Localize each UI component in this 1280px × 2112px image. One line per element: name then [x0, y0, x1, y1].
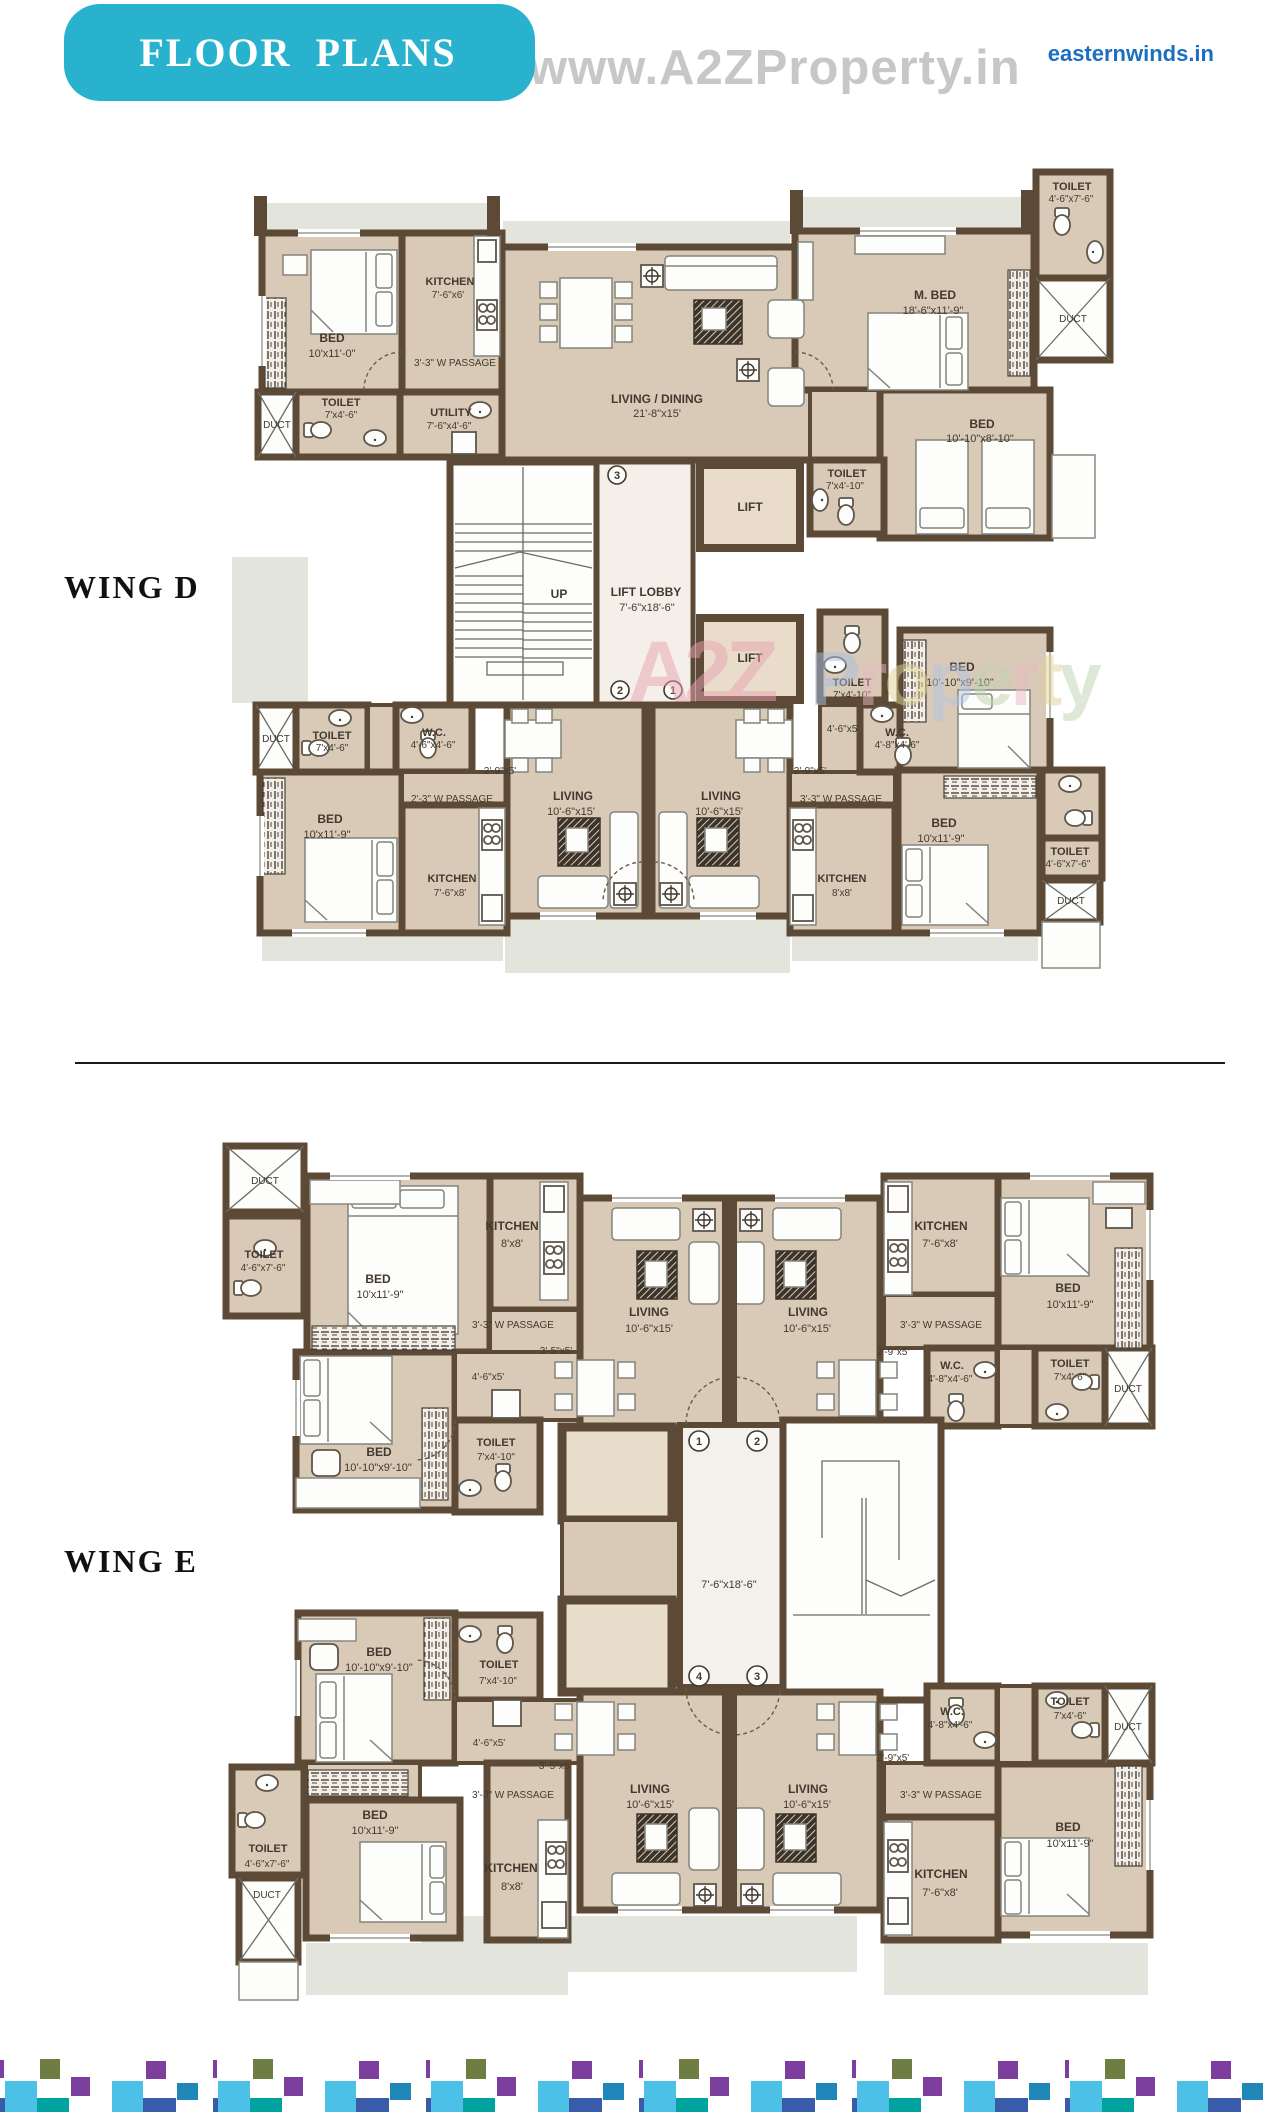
svg-text:2'-9"x5': 2'-9"x5'	[877, 1753, 909, 1764]
svg-text:W.C.: W.C.	[422, 727, 446, 739]
svg-text:TOILET: TOILET	[480, 1659, 519, 1671]
svg-text:7'x4'-10": 7'x4'-10"	[477, 1452, 515, 1463]
svg-text:TOILET: TOILET	[1053, 181, 1092, 193]
svg-text:7'-6"x8': 7'-6"x8'	[922, 1887, 958, 1899]
svg-text:10'x11'-9": 10'x11'-9"	[917, 833, 964, 845]
svg-text:M. BED: M. BED	[914, 288, 956, 302]
svg-text:DUCT: DUCT	[253, 1890, 281, 1901]
svg-text:TOILET: TOILET	[1051, 1358, 1090, 1370]
svg-text:FLOOR PLANS: FLOOR PLANS	[139, 30, 456, 75]
svg-text:4: 4	[696, 1671, 703, 1683]
svg-text:BED: BED	[931, 816, 957, 830]
svg-text:LIVING: LIVING	[630, 1782, 670, 1796]
svg-text:3'-3" W PASSAGE: 3'-3" W PASSAGE	[472, 1790, 554, 1801]
svg-text:7'-6"x18'-6": 7'-6"x18'-6"	[619, 602, 675, 614]
svg-text:7'x4'-6": 7'x4'-6"	[1054, 1711, 1087, 1722]
svg-text:8'x8': 8'x8'	[501, 1881, 523, 1893]
svg-text:A2Z: A2Z	[628, 624, 777, 720]
svg-text:10'-6"x15': 10'-6"x15'	[783, 1323, 831, 1335]
svg-text:3'-3" W PASSAGE: 3'-3" W PASSAGE	[900, 1320, 982, 1331]
svg-text:8'x8': 8'x8'	[501, 1238, 523, 1250]
svg-text:KITCHEN: KITCHEN	[818, 873, 867, 885]
svg-text:10'-6"x15': 10'-6"x15'	[783, 1799, 831, 1811]
svg-text:TOILET: TOILET	[245, 1249, 284, 1261]
svg-text:2'-3" W PASSAGE: 2'-3" W PASSAGE	[411, 794, 493, 805]
svg-text:10'x11'-9": 10'x11'-9"	[356, 1289, 403, 1301]
svg-text:3: 3	[614, 470, 620, 482]
svg-text:LIFT: LIFT	[737, 500, 763, 514]
svg-text:7'x4'-10": 7'x4'-10"	[479, 1676, 517, 1687]
svg-text:4'-6"x7'-6": 4'-6"x7'-6"	[245, 1859, 290, 1870]
svg-text:21'-8"x15': 21'-8"x15'	[633, 408, 681, 420]
svg-text:DUCT: DUCT	[251, 1176, 279, 1187]
svg-text:KITCHEN: KITCHEN	[428, 873, 477, 885]
svg-text:www.A2ZProperty.in: www.A2ZProperty.in	[528, 41, 1021, 95]
svg-text:DUCT: DUCT	[1059, 314, 1087, 325]
svg-text:KITCHEN: KITCHEN	[914, 1219, 967, 1233]
svg-text:7'x4'-6": 7'x4'-6"	[325, 410, 358, 421]
svg-text:7'x4'-10": 7'x4'-10"	[826, 481, 864, 492]
svg-text:BED: BED	[362, 1808, 388, 1822]
svg-text:3'-3" W PASSAGE: 3'-3" W PASSAGE	[900, 1790, 982, 1801]
svg-text:2: 2	[754, 1436, 760, 1448]
svg-text:LIVING: LIVING	[553, 789, 593, 803]
svg-text:TOILET: TOILET	[1051, 1696, 1090, 1708]
svg-text:DUCT: DUCT	[1114, 1384, 1142, 1395]
svg-text:LIFT LOBBY: LIFT LOBBY	[611, 585, 682, 599]
svg-text:LIVING / DINING: LIVING / DINING	[611, 392, 703, 406]
svg-text:LIVING: LIVING	[788, 1782, 828, 1796]
svg-text:KITCHEN: KITCHEN	[484, 1861, 537, 1875]
svg-text:10'x11'-0": 10'x11'-0"	[308, 348, 355, 360]
svg-text:2: 2	[617, 685, 623, 697]
svg-text:BED: BED	[969, 417, 995, 431]
svg-text:3'-3" W PASSAGE: 3'-3" W PASSAGE	[800, 794, 882, 805]
svg-text:10'-6"x15': 10'-6"x15'	[626, 1799, 674, 1811]
svg-text:3'-3" W PASSAGE: 3'-3" W PASSAGE	[414, 358, 496, 369]
svg-text:KITCHEN: KITCHEN	[485, 1219, 538, 1233]
svg-text:7'-6"x4'-6": 7'-6"x4'-6"	[427, 421, 472, 432]
svg-text:10'-10"x8'-10": 10'-10"x8'-10"	[946, 433, 1014, 445]
svg-text:4'-6"x7'-6": 4'-6"x7'-6"	[1049, 194, 1094, 205]
svg-text:WING E: WING E	[64, 1543, 198, 1579]
svg-text:easternwinds.in: easternwinds.in	[1048, 41, 1214, 66]
svg-text:4'-8"x4'-6": 4'-8"x4'-6"	[875, 740, 920, 751]
svg-text:DUCT: DUCT	[1057, 896, 1085, 907]
svg-text:W.C.: W.C.	[940, 1360, 964, 1372]
svg-text:7'-6"x8': 7'-6"x8'	[922, 1238, 958, 1250]
svg-text:LIVING: LIVING	[629, 1305, 669, 1319]
svg-text:3'-5"x5': 3'-5"x5'	[540, 1346, 572, 1357]
svg-text:8'x8': 8'x8'	[832, 888, 852, 899]
svg-text:10'x11'-9": 10'x11'-9"	[1046, 1838, 1093, 1850]
svg-text:4'-6"x5': 4'-6"x5'	[472, 1372, 504, 1383]
svg-text:BED: BED	[366, 1645, 392, 1659]
svg-text:BED: BED	[1055, 1820, 1081, 1834]
svg-text:7'-6"x8': 7'-6"x8'	[434, 888, 466, 899]
svg-text:7'-6"x6': 7'-6"x6'	[432, 290, 464, 301]
svg-text:10'x11'-9": 10'x11'-9"	[1046, 1299, 1093, 1311]
svg-text:W.C.: W.C.	[885, 727, 909, 739]
svg-text:TOILET: TOILET	[322, 397, 361, 409]
svg-text:2'-9"x5': 2'-9"x5'	[794, 766, 826, 777]
svg-text:KITCHEN: KITCHEN	[426, 276, 475, 288]
svg-text:4'-8"x4'-6": 4'-8"x4'-6"	[928, 1374, 973, 1385]
svg-text:4'-6"x7'-6": 4'-6"x7'-6"	[1046, 859, 1091, 870]
svg-text:10'x11'-9": 10'x11'-9"	[303, 829, 350, 841]
svg-text:BED: BED	[317, 812, 343, 826]
svg-text:7'x4'-6": 7'x4'-6"	[316, 743, 349, 754]
svg-text:4'-8"x4'-6": 4'-8"x4'-6"	[928, 1720, 973, 1731]
svg-text:10'-6"x15': 10'-6"x15'	[625, 1323, 673, 1335]
svg-text:LIVING: LIVING	[788, 1305, 828, 1319]
svg-text:UP: UP	[551, 587, 568, 601]
svg-text:TOILET: TOILET	[477, 1437, 516, 1449]
svg-text:10'x11'-9": 10'x11'-9"	[351, 1825, 398, 1837]
svg-text:18'-6"x11'-9": 18'-6"x11'-9"	[903, 305, 964, 317]
svg-text:BED: BED	[1055, 1281, 1081, 1295]
svg-text:10'-6"x15': 10'-6"x15'	[695, 806, 743, 818]
svg-text:BED: BED	[319, 331, 345, 345]
svg-text:Property: Property	[810, 637, 1101, 722]
svg-text:10'-10"x9'-10": 10'-10"x9'-10"	[344, 1462, 412, 1474]
svg-text:3'-3" W PASSAGE: 3'-3" W PASSAGE	[472, 1320, 554, 1331]
svg-text:7'-6"x18'-6": 7'-6"x18'-6"	[701, 1579, 757, 1591]
svg-text:UTILITY: UTILITY	[430, 407, 472, 419]
svg-text:1: 1	[696, 1436, 702, 1448]
svg-text:4'-6"x5': 4'-6"x5'	[473, 1738, 505, 1749]
svg-text:LIVING: LIVING	[701, 789, 741, 803]
svg-text:2'-9"x5': 2'-9"x5'	[484, 766, 516, 777]
svg-text:TOILET: TOILET	[1051, 846, 1090, 858]
svg-text:4'-6"x5': 4'-6"x5'	[827, 724, 859, 735]
svg-text:2'-9"x5': 2'-9"x5'	[877, 1347, 909, 1358]
svg-text:7'x4'-6": 7'x4'-6"	[1054, 1372, 1087, 1383]
svg-text:3'-5"x5': 3'-5"x5'	[539, 1761, 571, 1772]
svg-text:10'-10"x9'-10": 10'-10"x9'-10"	[345, 1662, 413, 1674]
svg-text:KITCHEN: KITCHEN	[914, 1867, 967, 1881]
svg-text:BED: BED	[366, 1445, 392, 1459]
svg-text:4'-6"x7'-6": 4'-6"x7'-6"	[241, 1263, 286, 1274]
svg-text:DUCT: DUCT	[262, 734, 290, 745]
svg-text:TOILET: TOILET	[828, 468, 867, 480]
svg-text:WING D: WING D	[64, 569, 200, 605]
svg-text:3: 3	[754, 1671, 760, 1683]
svg-text:DUCT: DUCT	[263, 420, 291, 431]
svg-text:W.C.: W.C.	[940, 1706, 964, 1718]
svg-text:TOILET: TOILET	[313, 730, 352, 742]
svg-text:DUCT: DUCT	[1114, 1722, 1142, 1733]
svg-text:TOILET: TOILET	[249, 1843, 288, 1855]
svg-text:4'-6"x4'-6": 4'-6"x4'-6"	[411, 740, 456, 751]
svg-text:BED: BED	[365, 1272, 391, 1286]
svg-text:10'-6"x15': 10'-6"x15'	[547, 806, 595, 818]
